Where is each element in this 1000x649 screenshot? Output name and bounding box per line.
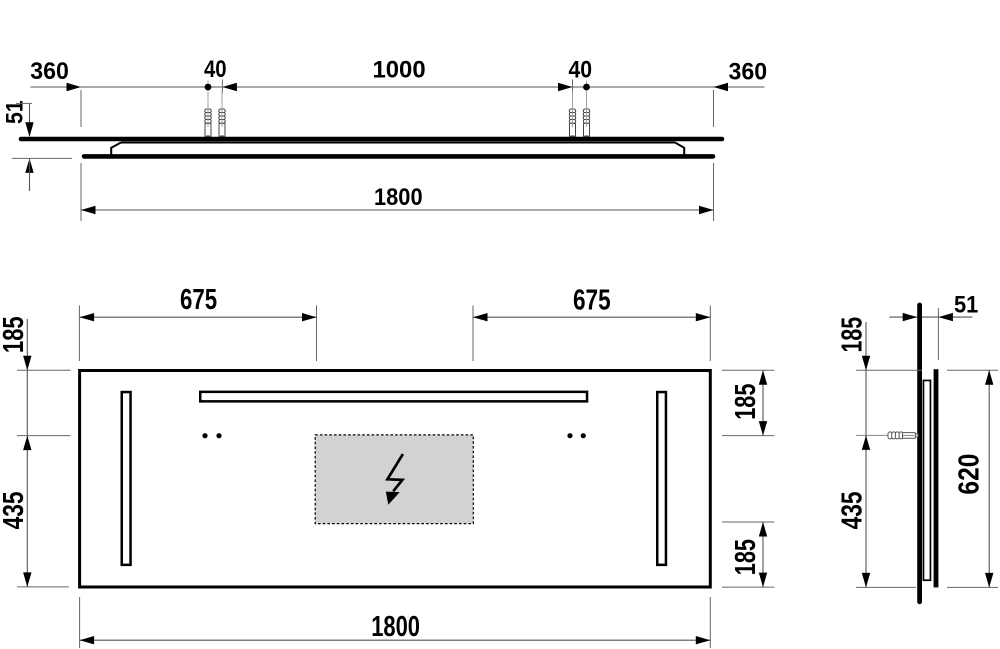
svg-text:1800: 1800 (374, 184, 423, 211)
svg-text:675: 675 (180, 284, 217, 316)
svg-text:185: 185 (730, 384, 762, 420)
svg-text:40: 40 (569, 57, 593, 84)
svg-text:435: 435 (836, 491, 868, 529)
svg-text:40: 40 (204, 56, 227, 83)
svg-text:1800: 1800 (371, 611, 420, 643)
svg-text:360: 360 (729, 59, 768, 86)
svg-text:1000: 1000 (373, 57, 426, 84)
svg-text:185: 185 (730, 539, 762, 575)
svg-text:51: 51 (2, 100, 29, 124)
svg-text:185: 185 (836, 317, 868, 353)
svg-text:435: 435 (0, 491, 30, 529)
svg-text:185: 185 (0, 316, 30, 353)
svg-text:675: 675 (573, 285, 611, 317)
svg-text:360: 360 (30, 58, 69, 85)
svg-text:51: 51 (954, 291, 978, 318)
svg-text:620: 620 (954, 454, 986, 495)
